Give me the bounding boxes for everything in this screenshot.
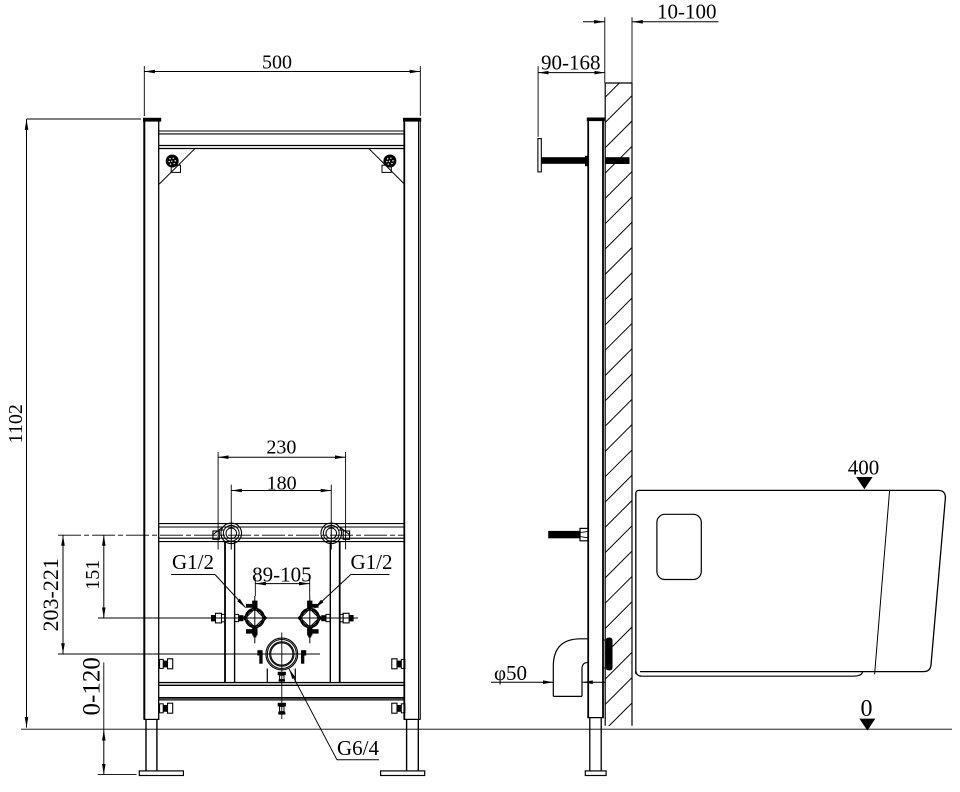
svg-text:G6/4: G6/4 xyxy=(337,736,380,760)
svg-text:151: 151 xyxy=(82,560,104,590)
svg-text:0: 0 xyxy=(861,696,873,722)
svg-text:0-120: 0-120 xyxy=(79,657,106,715)
svg-text:230: 230 xyxy=(266,436,296,458)
svg-text:90-168: 90-168 xyxy=(541,51,601,75)
svg-text:10-100: 10-100 xyxy=(657,0,717,24)
svg-text:G1/2: G1/2 xyxy=(172,550,214,574)
svg-text:φ50: φ50 xyxy=(494,661,527,685)
svg-text:G1/2: G1/2 xyxy=(351,550,393,574)
svg-text:1102: 1102 xyxy=(5,404,27,443)
svg-text:89-105: 89-105 xyxy=(252,562,312,586)
svg-text:500: 500 xyxy=(262,52,292,74)
svg-text:203-221: 203-221 xyxy=(38,558,63,631)
svg-text:400: 400 xyxy=(848,455,880,479)
